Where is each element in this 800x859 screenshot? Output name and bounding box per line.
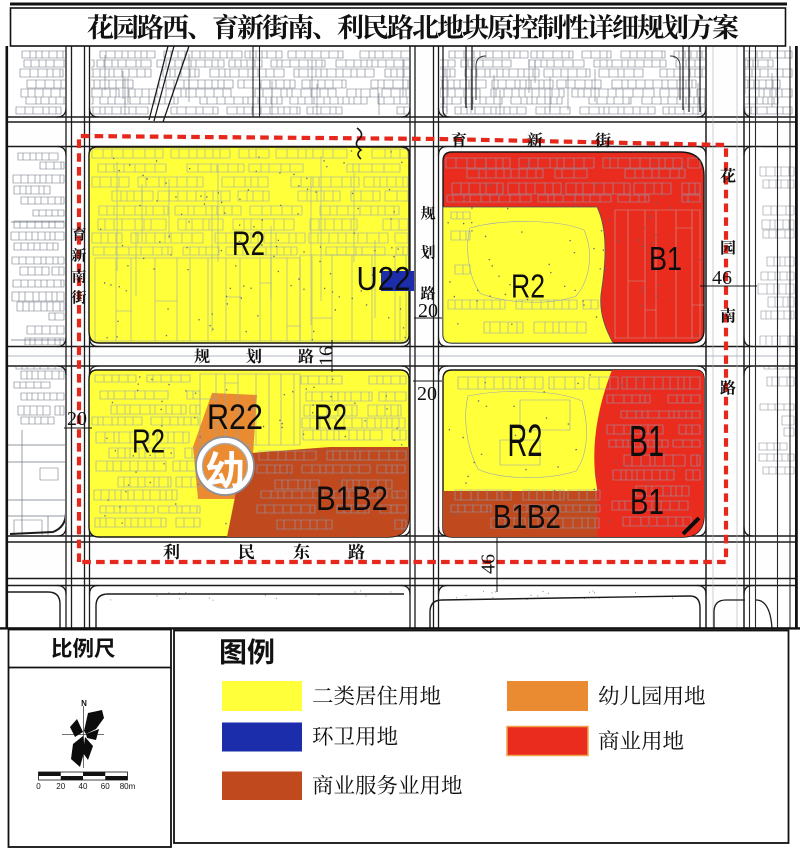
- svg-text:20: 20: [67, 408, 87, 430]
- svg-text:20: 20: [418, 300, 438, 322]
- svg-text:U22: U22: [357, 260, 411, 297]
- svg-text:0: 0: [36, 782, 41, 791]
- svg-text:R2: R2: [508, 415, 543, 466]
- svg-text:R2: R2: [314, 397, 347, 438]
- svg-text:80m: 80m: [120, 782, 136, 791]
- svg-text:B1: B1: [649, 240, 682, 277]
- svg-text:B1B2: B1B2: [493, 498, 561, 535]
- svg-text:40: 40: [79, 782, 88, 791]
- svg-text:R2: R2: [132, 423, 165, 460]
- svg-text:B1B2: B1B2: [316, 480, 388, 518]
- svg-text:16: 16: [316, 346, 338, 366]
- svg-text:20: 20: [56, 782, 65, 791]
- svg-text:B1: B1: [629, 417, 664, 466]
- svg-text:N: N: [81, 699, 87, 708]
- svg-text:R2: R2: [232, 225, 265, 263]
- svg-text:R2: R2: [511, 268, 545, 305]
- svg-text:46: 46: [712, 267, 732, 289]
- svg-text:60: 60: [101, 782, 110, 791]
- svg-text:B1: B1: [630, 481, 664, 522]
- svg-text:46: 46: [478, 554, 500, 574]
- svg-text:20: 20: [417, 383, 437, 405]
- svg-text:R22: R22: [207, 398, 263, 437]
